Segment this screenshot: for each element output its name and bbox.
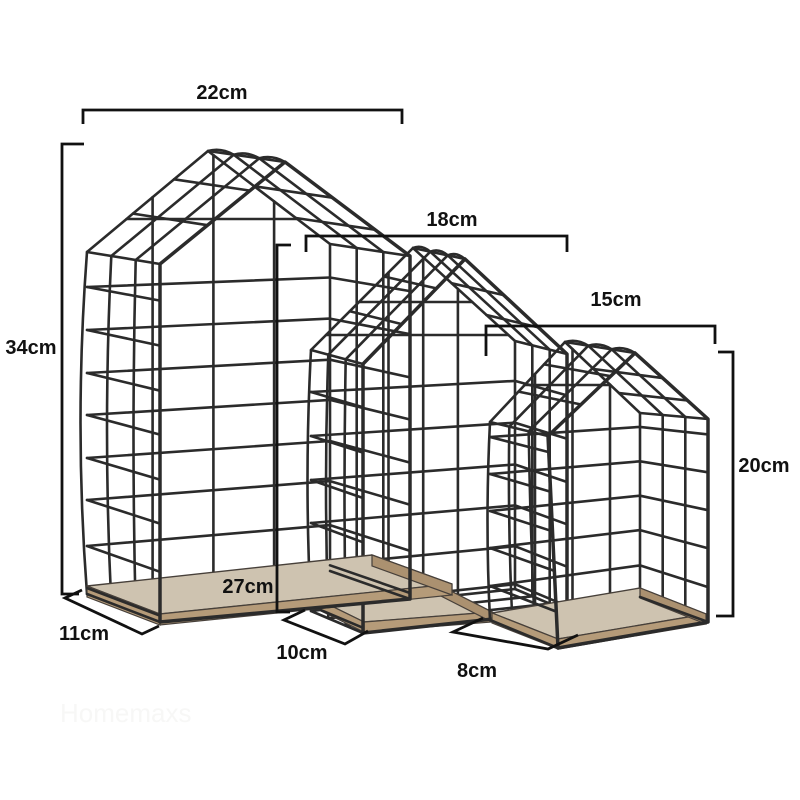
svg-text:22cm: 22cm	[196, 82, 247, 104]
svg-text:11cm: 11cm	[59, 623, 109, 645]
svg-text:15cm: 15cm	[590, 289, 641, 311]
svg-text:20cm: 20cm	[738, 455, 789, 477]
svg-text:27cm: 27cm	[222, 576, 273, 598]
svg-text:8cm: 8cm	[457, 660, 497, 682]
svg-text:10cm: 10cm	[276, 642, 327, 664]
svg-text:Homemaxs: Homemaxs	[60, 698, 191, 728]
svg-text:34cm: 34cm	[5, 337, 56, 359]
svg-text:18cm: 18cm	[426, 209, 477, 231]
